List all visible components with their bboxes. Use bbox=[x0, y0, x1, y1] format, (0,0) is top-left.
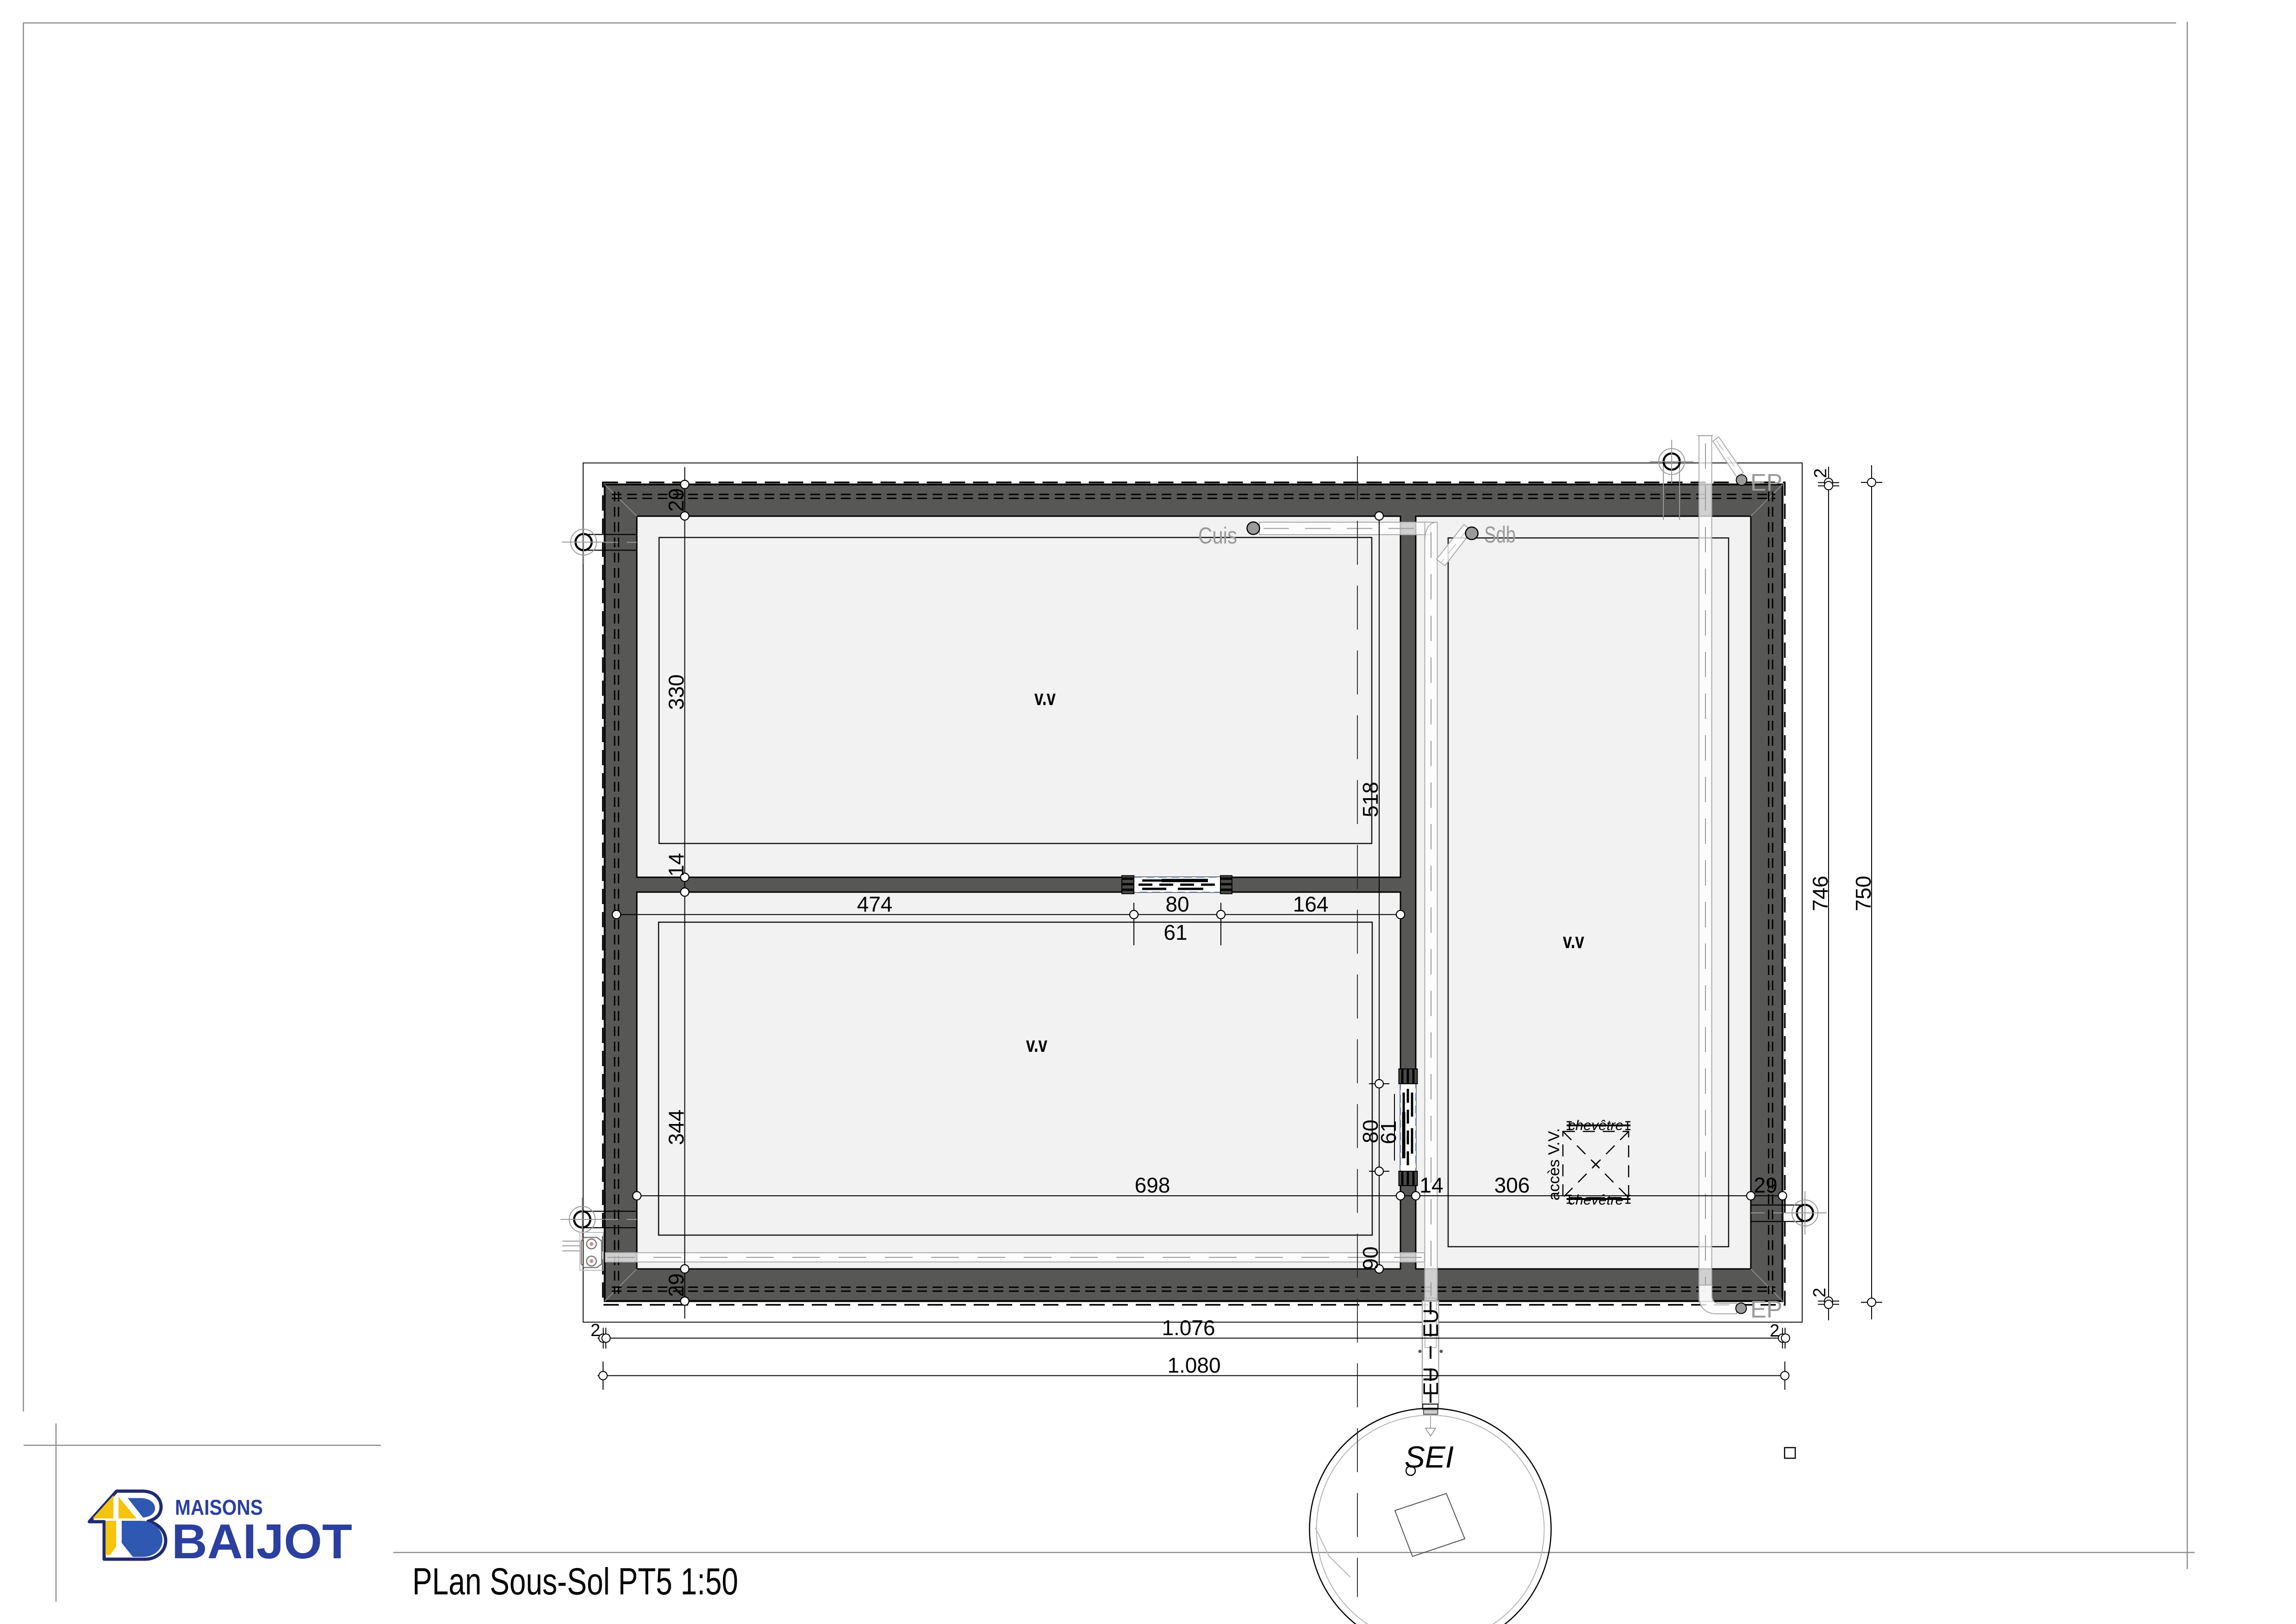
svg-text:750: 750 bbox=[1851, 876, 1875, 912]
svg-text:698: 698 bbox=[1135, 1173, 1170, 1197]
svg-text:v.v: v.v bbox=[1026, 1032, 1047, 1056]
svg-text:61: 61 bbox=[1164, 920, 1187, 944]
svg-text:accès V.V.: accès V.V. bbox=[1545, 1128, 1563, 1200]
svg-text:330: 330 bbox=[664, 675, 688, 710]
svg-text:29: 29 bbox=[664, 488, 688, 512]
svg-text:EU: EU bbox=[1419, 1309, 1443, 1338]
svg-text:EU: EU bbox=[1419, 1367, 1443, 1396]
svg-text:PLan Sous-Sol PT5 1:50: PLan Sous-Sol PT5 1:50 bbox=[412, 1561, 738, 1603]
svg-text:2: 2 bbox=[1770, 1321, 1780, 1341]
svg-text:SEI: SEI bbox=[1405, 1440, 1454, 1474]
svg-text:746: 746 bbox=[1808, 876, 1832, 912]
svg-text:306: 306 bbox=[1494, 1173, 1530, 1197]
svg-text:29: 29 bbox=[664, 1273, 688, 1297]
svg-text:EP: EP bbox=[1750, 1296, 1782, 1323]
svg-text:chevêtre: chevêtre bbox=[1568, 1117, 1624, 1133]
svg-text:BAIJOT: BAIJOT bbox=[172, 1514, 352, 1569]
svg-text:Cuis: Cuis bbox=[1198, 523, 1237, 549]
svg-text:90: 90 bbox=[1358, 1246, 1382, 1270]
svg-text:2: 2 bbox=[591, 1321, 600, 1340]
svg-text:14: 14 bbox=[664, 853, 688, 876]
svg-text:474: 474 bbox=[857, 892, 893, 916]
svg-text:EP: EP bbox=[1750, 469, 1782, 496]
svg-text:80: 80 bbox=[1165, 892, 1189, 916]
svg-text:344: 344 bbox=[664, 1110, 688, 1145]
svg-text:14: 14 bbox=[1419, 1173, 1443, 1197]
svg-text:1.080: 1.080 bbox=[1167, 1353, 1220, 1377]
svg-text:v.v: v.v bbox=[1563, 929, 1584, 953]
svg-text:29: 29 bbox=[1754, 1173, 1777, 1197]
svg-text:518: 518 bbox=[1358, 782, 1382, 818]
svg-text:v.v: v.v bbox=[1034, 686, 1056, 710]
svg-text:chevêtre: chevêtre bbox=[1568, 1192, 1624, 1208]
svg-text:Sdb: Sdb bbox=[1484, 522, 1516, 548]
svg-text:164: 164 bbox=[1293, 892, 1329, 916]
svg-text:61: 61 bbox=[1376, 1120, 1400, 1144]
svg-text:1.076: 1.076 bbox=[1162, 1316, 1215, 1340]
svg-text:2: 2 bbox=[1810, 1287, 1829, 1297]
svg-text:2: 2 bbox=[1811, 468, 1830, 478]
